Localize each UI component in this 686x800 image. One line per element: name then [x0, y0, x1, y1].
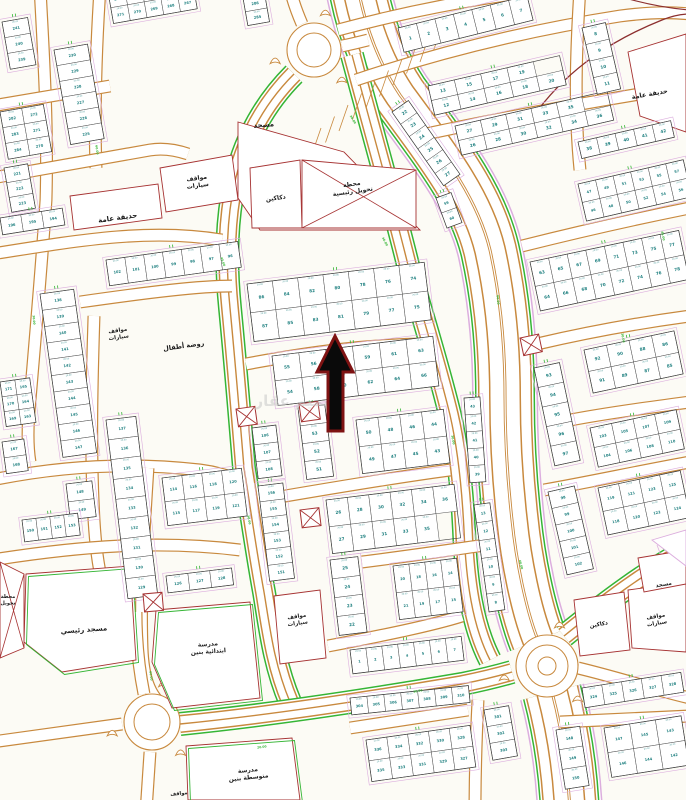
lot-number: 45: [412, 451, 418, 457]
lot-number: 49: [369, 456, 375, 462]
lot-number: 78: [359, 282, 365, 288]
lot-number: 66: [421, 372, 427, 378]
lot-number: 305: [372, 702, 380, 707]
road-dimension: 30.00: [32, 315, 37, 325]
lot-number: 76: [385, 279, 391, 285]
lot-number: 58: [314, 386, 320, 392]
lot-number: 47: [391, 453, 397, 459]
lot-number: 40: [474, 455, 480, 459]
lot-number: 42: [471, 421, 477, 425]
lot-number: 34: [420, 499, 426, 505]
lot-number: 74: [410, 275, 416, 281]
substation-box: [143, 592, 163, 612]
primary-school-boys: [152, 602, 263, 711]
svg-text:تحويل: تحويل: [1, 600, 16, 606]
lot-number: 25: [342, 565, 348, 571]
lot-number: 61: [391, 351, 397, 357]
lot-number: 80: [334, 285, 340, 291]
lot-number: 36: [442, 496, 448, 502]
lot-number: 84: [284, 291, 290, 297]
parcel-outline: [0, 562, 24, 658]
substation-box: [300, 508, 321, 528]
lot-number: 31: [381, 531, 387, 537]
lot-number: 55: [284, 364, 290, 370]
parking-school: [274, 590, 326, 664]
lot-number: 75: [414, 304, 420, 310]
roundabout-outer-ring: [516, 635, 578, 697]
lot-number: 87: [262, 323, 268, 329]
road: [342, 40, 368, 46]
lot-number: 48: [387, 427, 393, 433]
substation-box: [520, 334, 542, 356]
lot-number: 44: [431, 421, 437, 427]
lot-number: 43: [434, 448, 440, 454]
lot-number: 86: [258, 294, 264, 300]
lot-number: 308: [423, 697, 431, 702]
lot-number: 39: [475, 472, 481, 476]
lot-number: 59: [364, 354, 370, 360]
road-dimension: 60.00: [496, 295, 501, 305]
road: [146, 752, 150, 800]
lot-number: 52: [314, 448, 320, 454]
lot-number: 62: [367, 379, 373, 385]
roundabout-outer-ring: [287, 23, 341, 77]
lot-number: 85: [287, 320, 293, 326]
lot-number: 83: [312, 317, 318, 323]
label-parking-tl: مواقفسيارات: [185, 173, 209, 190]
lot-number: 30: [378, 504, 384, 510]
lot-number: 46: [409, 424, 415, 430]
lot-number: 53: [312, 430, 318, 436]
lot-number: 43: [470, 404, 476, 408]
lot-number: 56: [311, 361, 317, 367]
lot-number: 28: [356, 507, 362, 513]
lot-number: 64: [394, 376, 400, 382]
lot-number: 27: [338, 536, 344, 542]
substation-parcel-left: [0, 562, 24, 658]
svg-text:محطة: محطة: [1, 594, 16, 600]
lot-number: 29: [360, 534, 366, 540]
lot-number: 307: [406, 698, 414, 703]
lot-number: 24: [344, 584, 350, 590]
lot-number: 79: [363, 310, 369, 316]
lot-number: 23: [346, 603, 352, 609]
lot-number: 82: [309, 288, 315, 294]
lot-number: 26: [335, 509, 341, 515]
lot-number: 304: [356, 704, 364, 709]
plat-map-stage: 20.0026220.0026320.0026420.0026520.00266…: [0, 0, 686, 800]
lot-number: 310: [457, 693, 465, 698]
plat-map: 20.0026220.0026320.0026420.0026520.00266…: [0, 0, 686, 800]
lot-number: 81: [338, 314, 344, 320]
label-substation-left: محطةتحويل: [1, 594, 16, 606]
lot-number: 51: [316, 466, 322, 472]
lot-number: 33: [402, 528, 408, 534]
lot-number: 41: [472, 438, 478, 442]
lot-number: 63: [418, 348, 424, 354]
lot-number: 309: [440, 695, 448, 700]
lot-number: 32: [399, 501, 405, 507]
parcel-outline: [274, 590, 326, 664]
lot-number: 50: [365, 429, 371, 435]
lot-number: 35: [424, 526, 430, 532]
lot-number: 22: [349, 622, 355, 628]
lot-number: 77: [388, 307, 394, 313]
lot-number: 306: [389, 700, 397, 705]
